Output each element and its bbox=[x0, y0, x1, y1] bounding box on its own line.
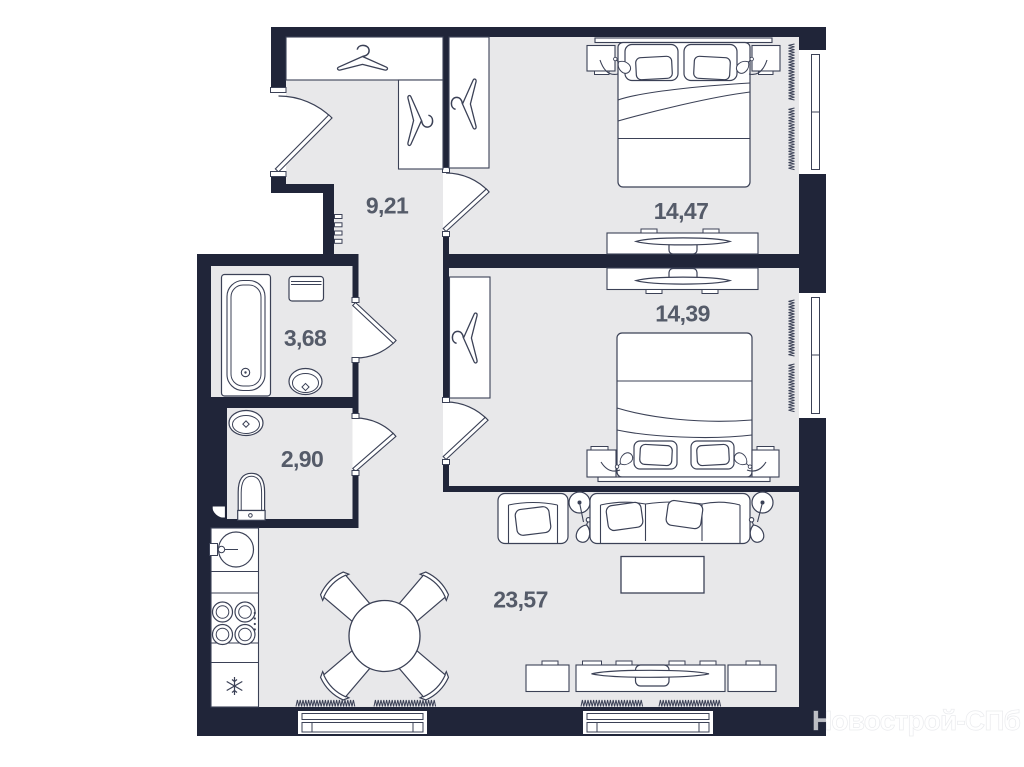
svg-text:9,21: 9,21 bbox=[366, 193, 409, 219]
svg-text:2,90: 2,90 bbox=[281, 446, 323, 472]
svg-text:Новострой-СПб: Новострой-СПб bbox=[812, 705, 1021, 736]
svg-text:3,68: 3,68 bbox=[284, 325, 327, 351]
svg-text:14,47: 14,47 bbox=[654, 198, 709, 224]
svg-text:14,39: 14,39 bbox=[655, 301, 710, 327]
svg-text:23,57: 23,57 bbox=[493, 587, 548, 613]
